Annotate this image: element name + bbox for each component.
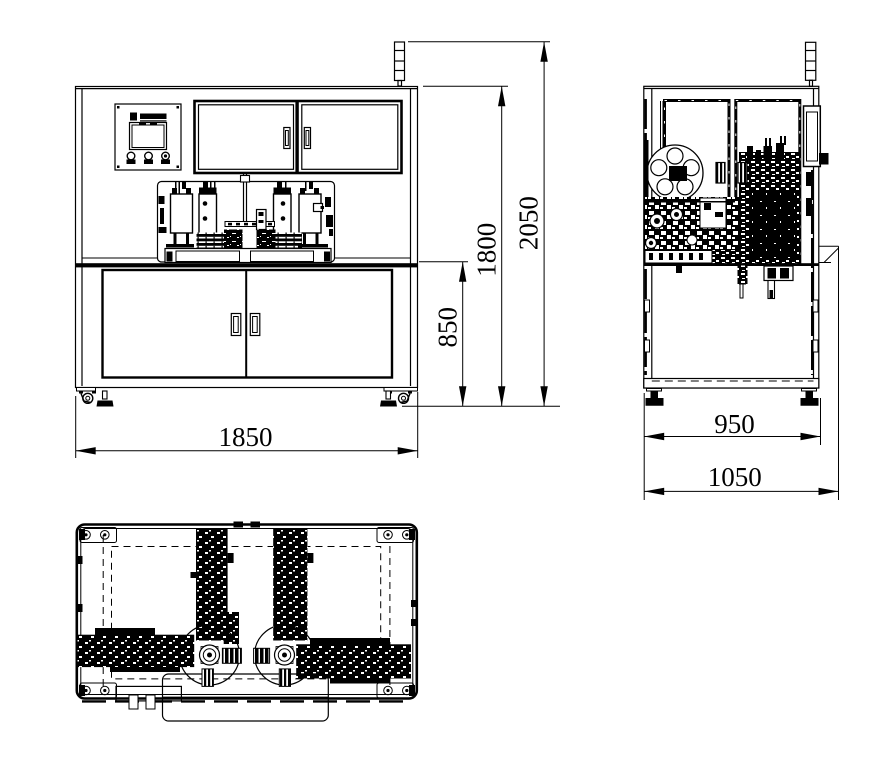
svg-text:1850: 1850 <box>219 422 273 452</box>
svg-text:850: 850 <box>432 307 462 348</box>
svg-text:1050: 1050 <box>708 462 762 492</box>
svg-text:2050: 2050 <box>514 196 544 250</box>
svg-text:950: 950 <box>714 409 755 439</box>
svg-text:1800: 1800 <box>472 223 502 277</box>
